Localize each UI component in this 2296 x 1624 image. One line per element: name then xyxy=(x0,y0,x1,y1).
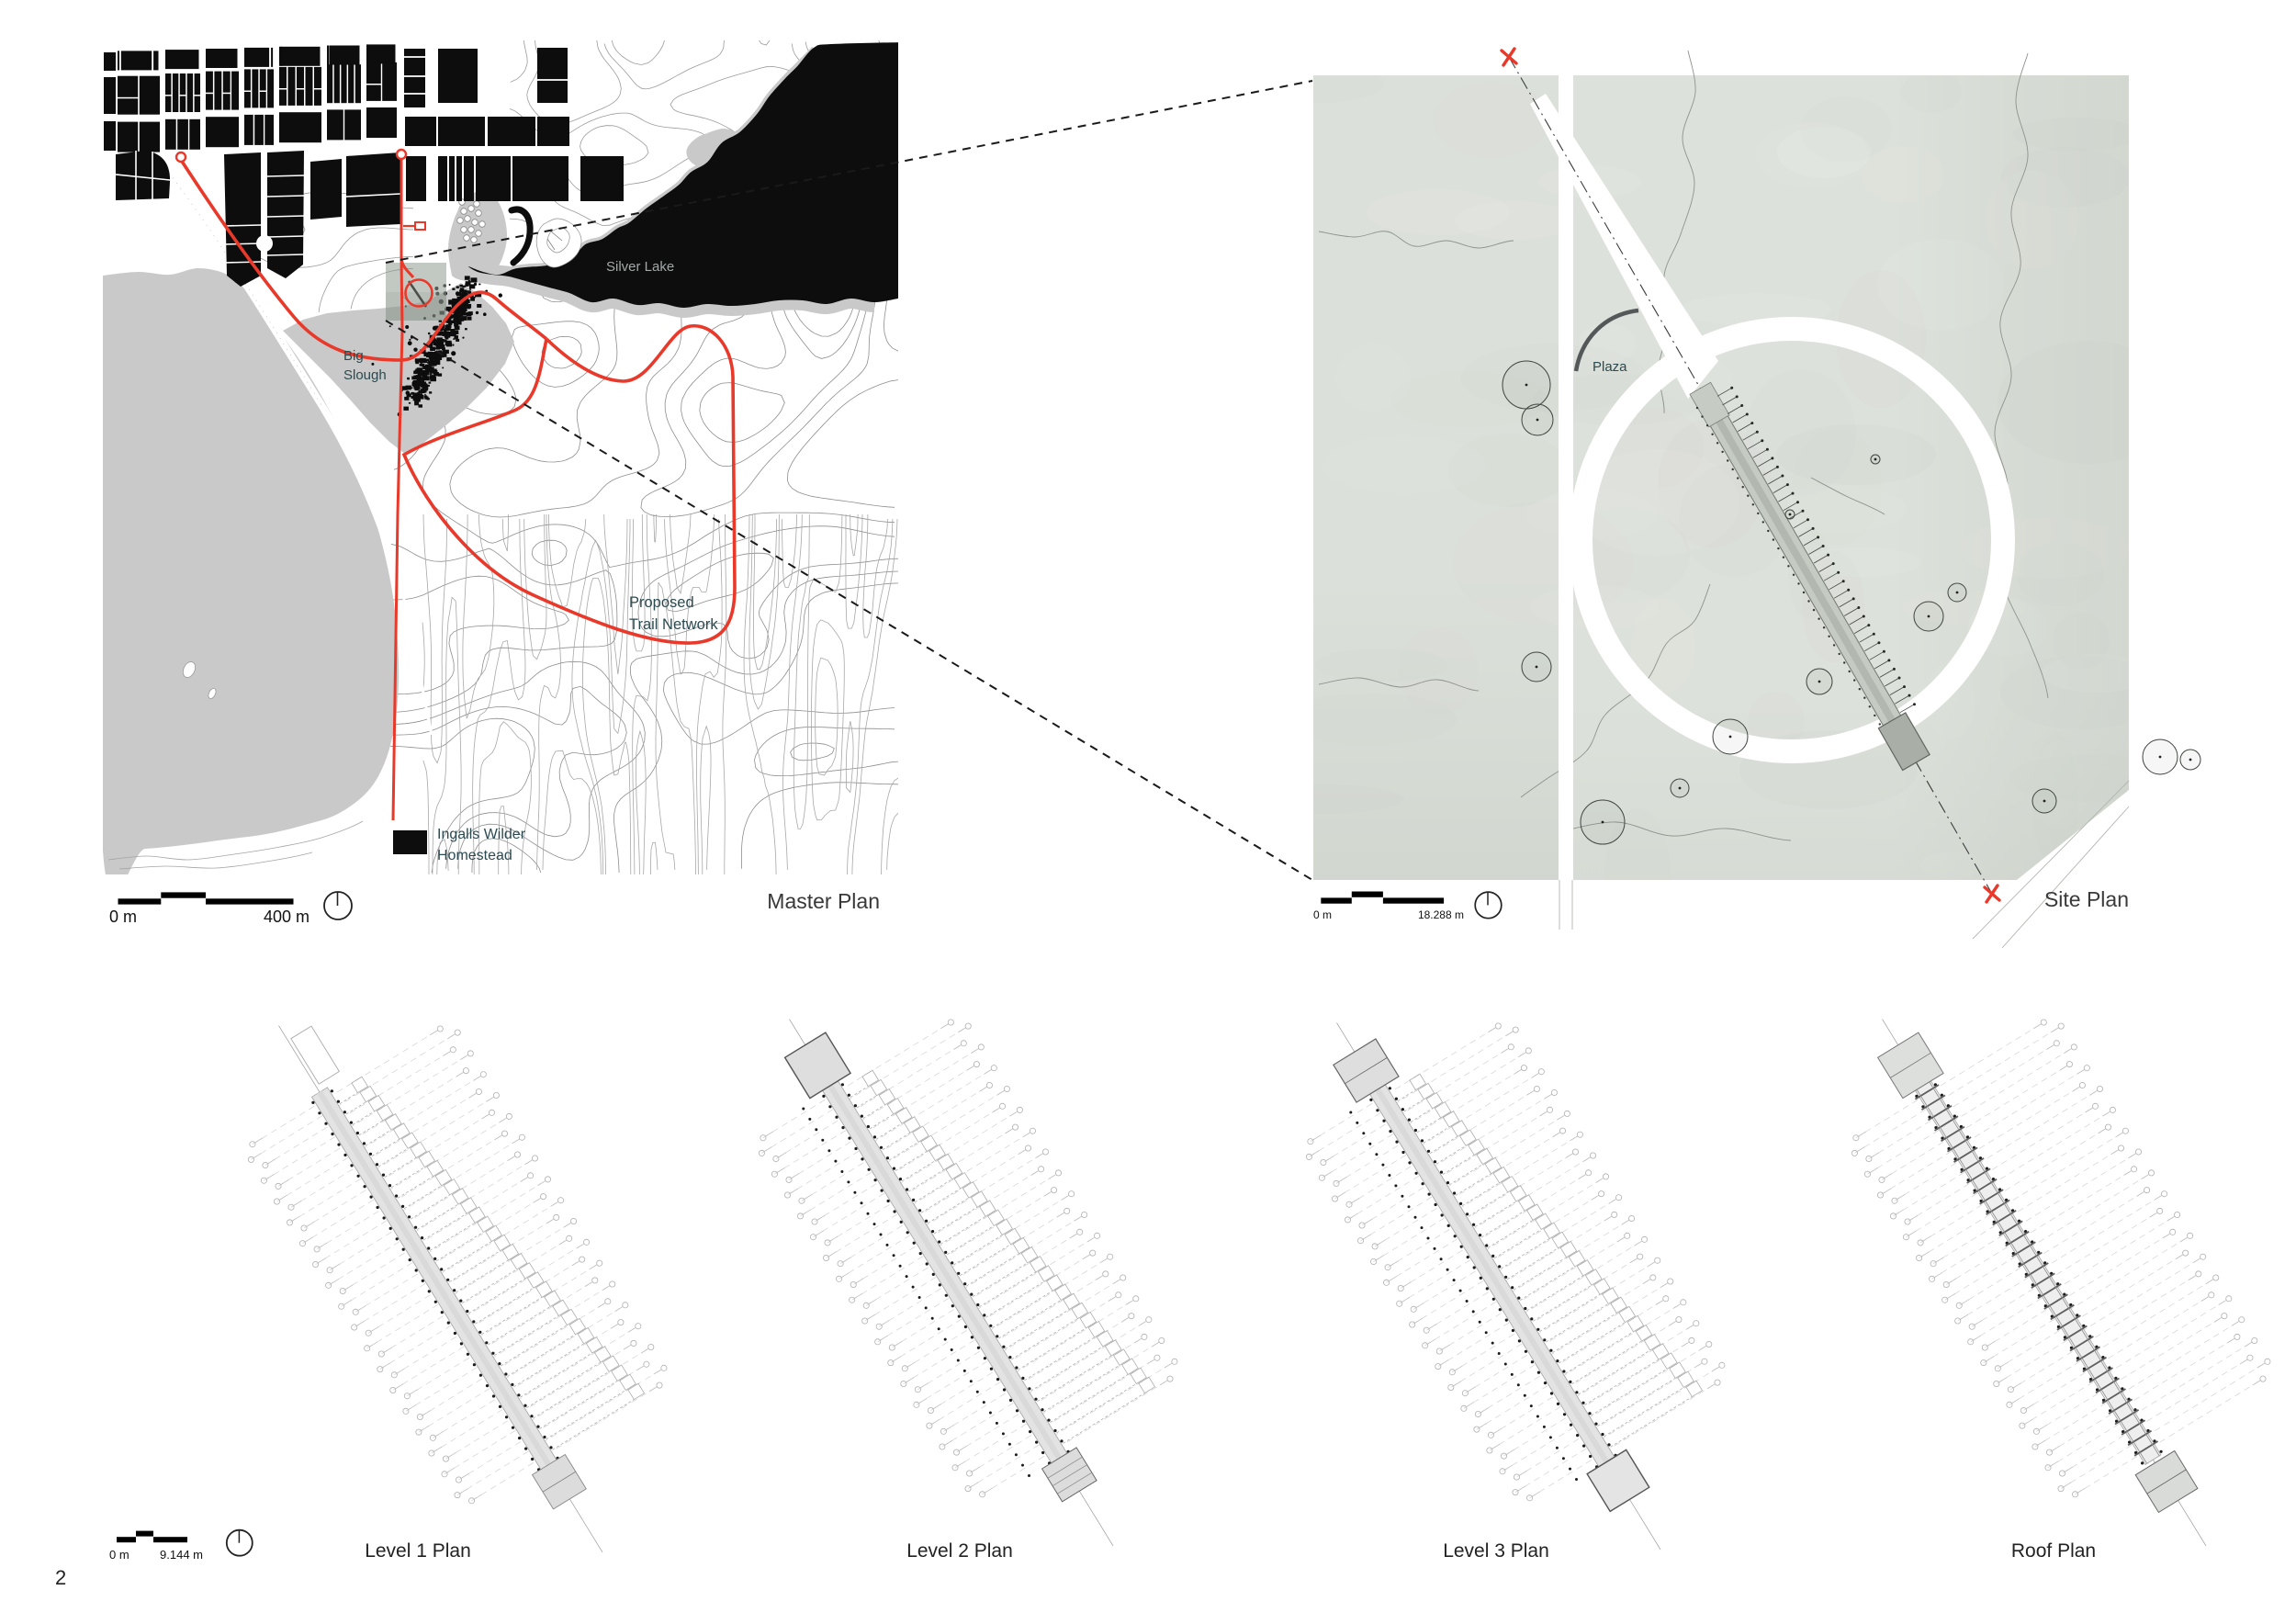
svg-text:Level 2 Plan: Level 2 Plan xyxy=(906,1540,1013,1562)
svg-text:2: 2 xyxy=(55,1566,66,1589)
svg-text:0 m: 0 m xyxy=(109,908,137,926)
svg-text:18.288 m: 18.288 m xyxy=(1418,908,1464,921)
svg-text:0 m: 0 m xyxy=(1313,908,1332,921)
svg-text:Slough: Slough xyxy=(343,367,387,383)
svg-text:400 m: 400 m xyxy=(264,908,310,926)
svg-text:Roof Plan: Roof Plan xyxy=(2011,1540,2096,1562)
svg-text:Big: Big xyxy=(343,348,364,364)
svg-text:Homestead: Homestead xyxy=(437,848,512,863)
svg-text:Proposed: Proposed xyxy=(629,594,694,611)
svg-text:Level 1 Plan: Level 1 Plan xyxy=(365,1540,471,1562)
svg-text:Trail Network: Trail Network xyxy=(629,616,718,633)
svg-text:9.144 m: 9.144 m xyxy=(160,1548,203,1562)
svg-text:Site Plan: Site Plan xyxy=(2044,887,2129,911)
svg-text:Plaza: Plaza xyxy=(1593,359,1627,375)
svg-text:0 m: 0 m xyxy=(109,1548,129,1562)
svg-text:Master Plan: Master Plan xyxy=(767,889,880,913)
svg-text:Silver Lake: Silver Lake xyxy=(606,259,674,275)
svg-text:Ingalls Wilder: Ingalls Wilder xyxy=(437,827,526,842)
svg-text:Level 3 Plan: Level 3 Plan xyxy=(1443,1540,1549,1562)
